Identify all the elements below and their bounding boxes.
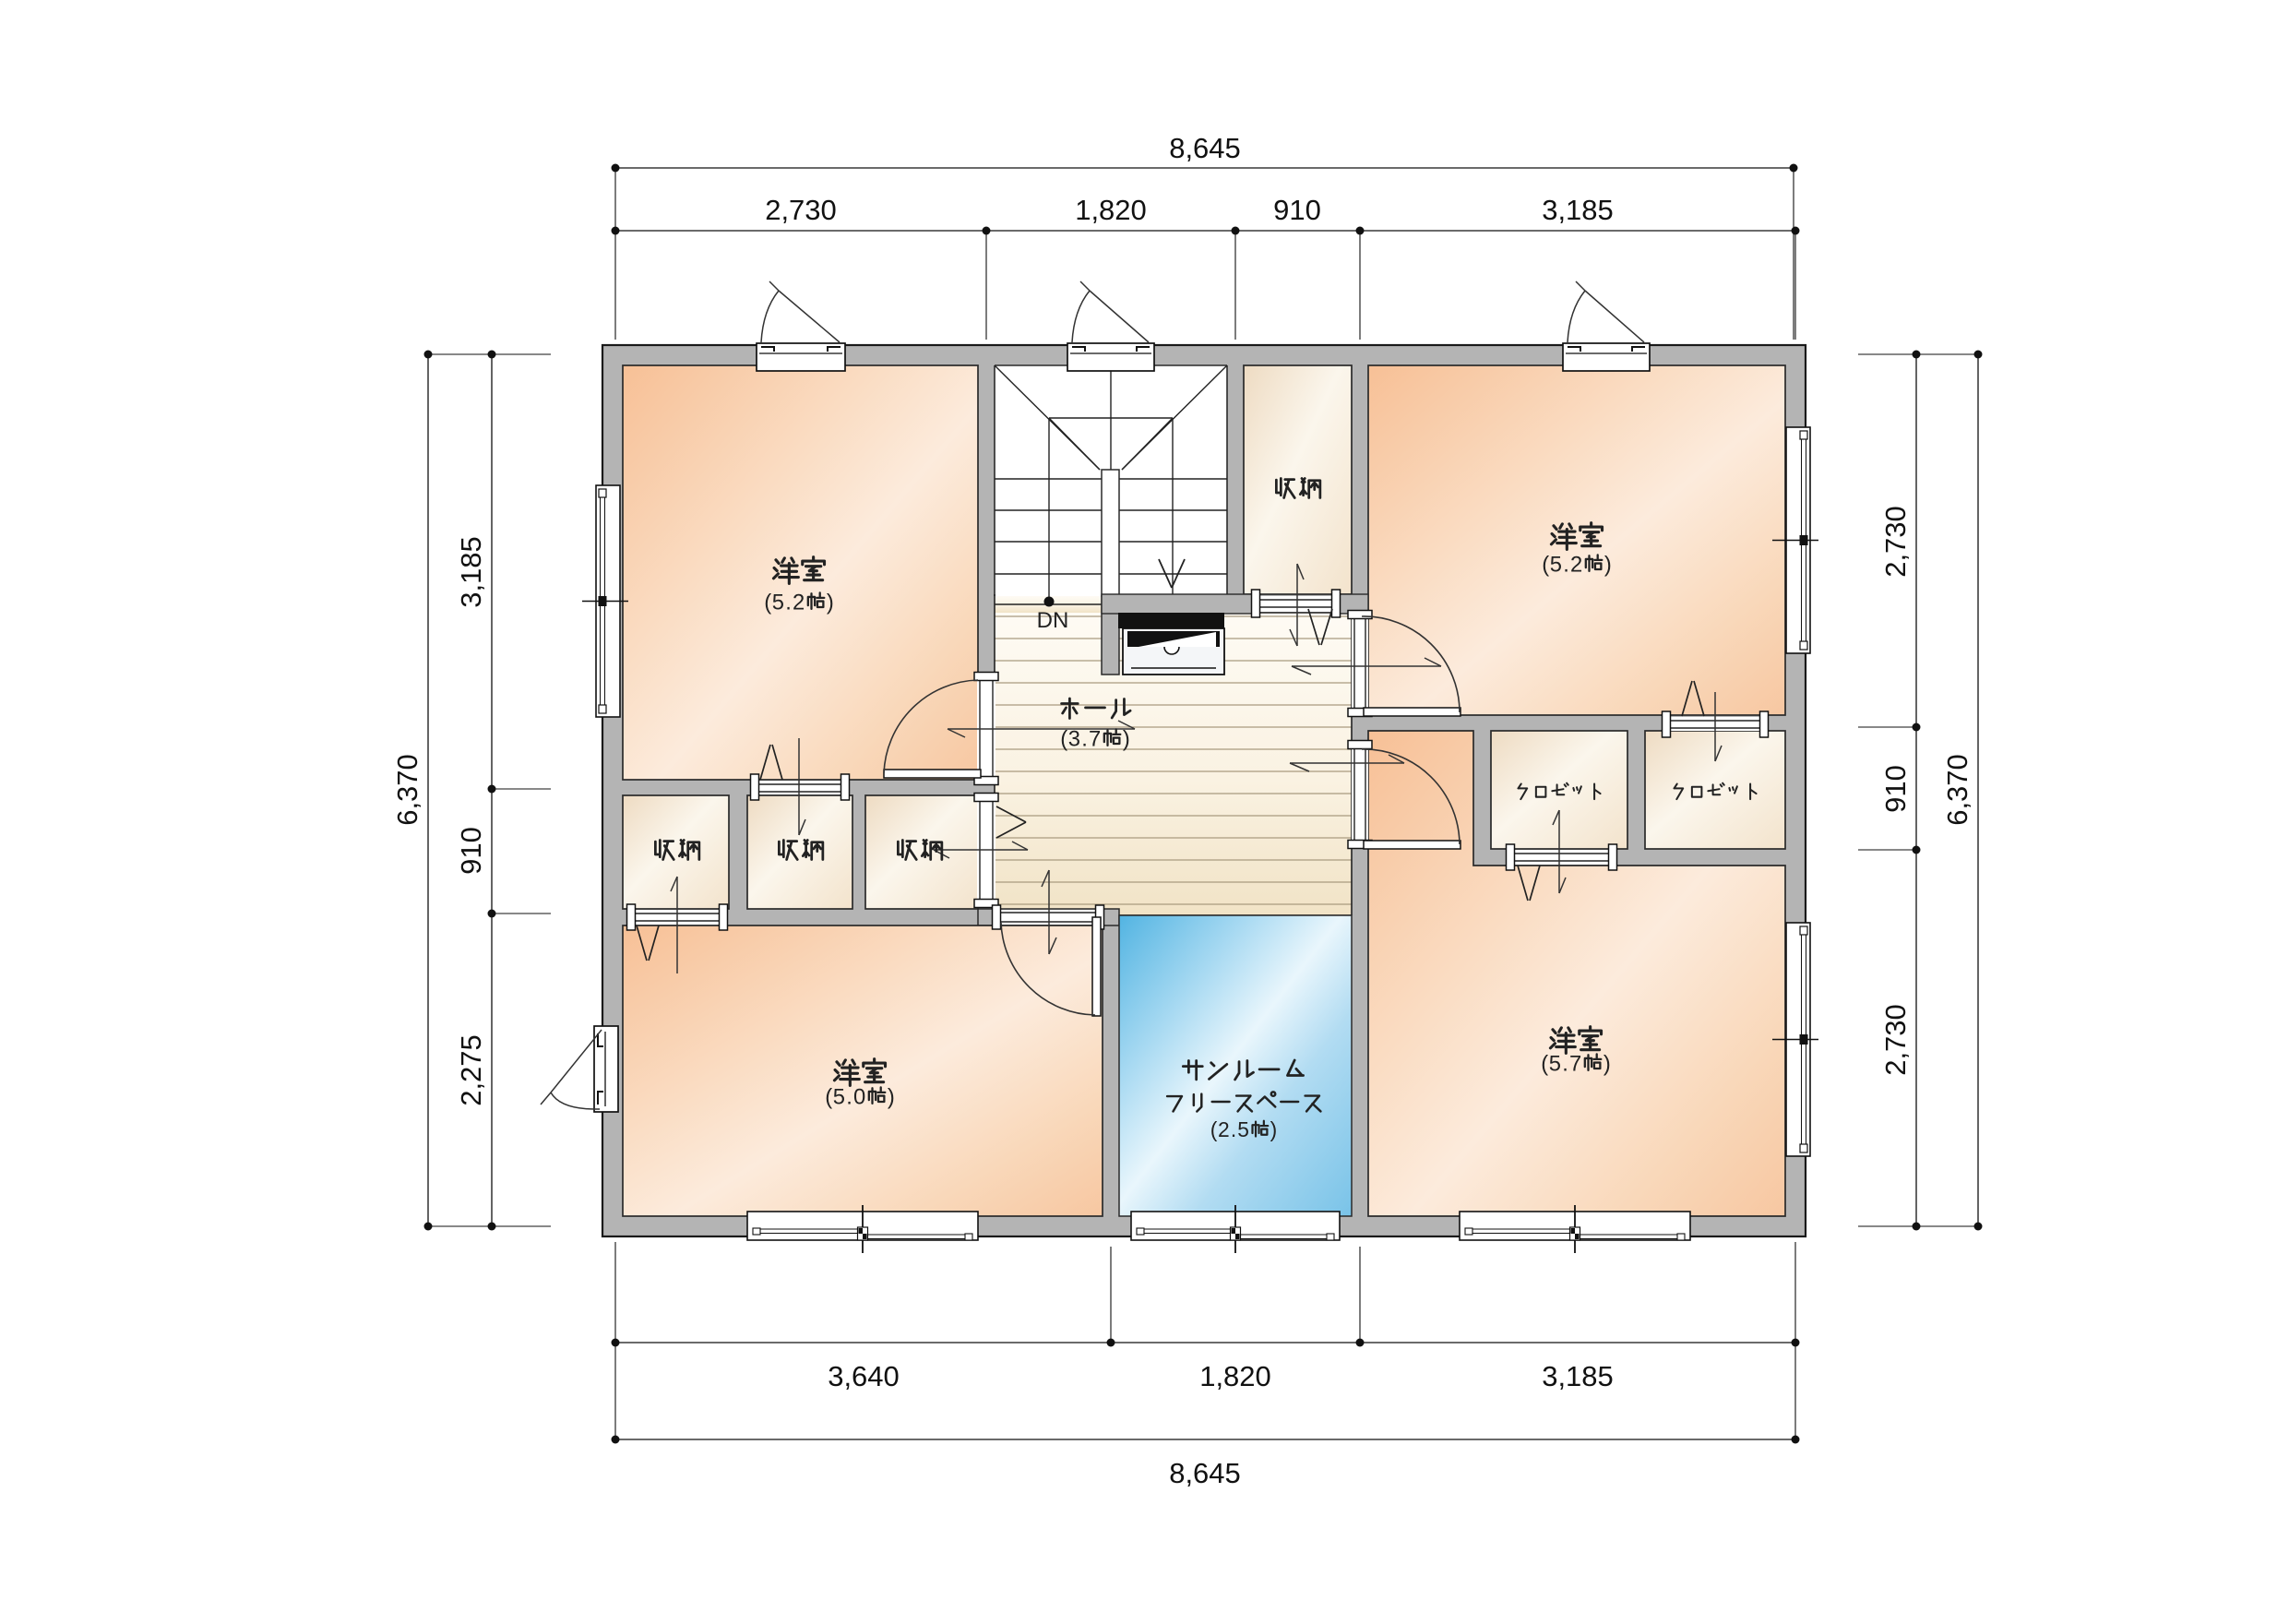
svg-text:(: ( <box>1210 1117 1218 1141</box>
svg-text:2,730: 2,730 <box>1879 506 1912 578</box>
svg-text:.: . <box>1563 553 1569 578</box>
svg-text:2,730: 2,730 <box>1879 1004 1912 1076</box>
svg-text:910: 910 <box>1879 765 1912 813</box>
svg-text:): ) <box>1603 1052 1611 1077</box>
svg-text:): ) <box>888 1085 895 1110</box>
svg-text:): ) <box>1604 553 1612 578</box>
svg-text:5: 5 <box>1237 1117 1249 1141</box>
svg-text:7: 7 <box>1089 727 1101 752</box>
svg-text:3,185: 3,185 <box>1542 194 1614 226</box>
svg-text:3,640: 3,640 <box>828 1360 900 1392</box>
svg-text:910: 910 <box>455 827 487 875</box>
svg-text:.: . <box>1562 1052 1568 1077</box>
svg-text:2: 2 <box>1570 553 1582 578</box>
svg-text:.: . <box>1081 727 1088 752</box>
svg-text:8,645: 8,645 <box>1169 132 1241 164</box>
svg-text:3: 3 <box>1068 727 1080 752</box>
svg-text:): ) <box>827 591 834 615</box>
svg-text:6,370: 6,370 <box>1941 754 1973 826</box>
svg-text:5: 5 <box>1550 553 1562 578</box>
svg-text:7: 7 <box>1569 1052 1581 1077</box>
svg-text:(: ( <box>764 591 771 615</box>
svg-text:DN: DN <box>1037 608 1069 633</box>
svg-text:1,820: 1,820 <box>1199 1360 1271 1392</box>
svg-text:2: 2 <box>1218 1117 1230 1141</box>
svg-text:.: . <box>846 1085 852 1110</box>
svg-text:): ) <box>1270 1117 1278 1141</box>
svg-text:910: 910 <box>1273 194 1321 226</box>
svg-text:2,275: 2,275 <box>455 1034 487 1106</box>
svg-text:2: 2 <box>793 591 805 615</box>
svg-text:5: 5 <box>833 1085 845 1110</box>
svg-text:.: . <box>785 591 792 615</box>
svg-text:1,820: 1,820 <box>1075 194 1147 226</box>
svg-text:5: 5 <box>1549 1052 1561 1077</box>
svg-text:8,645: 8,645 <box>1169 1457 1241 1489</box>
svg-text:): ) <box>1123 727 1130 752</box>
svg-text:(: ( <box>1541 1052 1548 1077</box>
svg-text:6,370: 6,370 <box>391 754 423 826</box>
svg-text:3,185: 3,185 <box>1542 1360 1614 1392</box>
svg-text:(: ( <box>825 1085 832 1110</box>
svg-text:0: 0 <box>853 1085 865 1110</box>
svg-text:2,730: 2,730 <box>765 194 837 226</box>
svg-text:(: ( <box>1060 727 1067 752</box>
svg-text:(: ( <box>1542 553 1549 578</box>
svg-text:5: 5 <box>772 591 784 615</box>
svg-text:3,185: 3,185 <box>455 536 487 608</box>
svg-text:.: . <box>1231 1117 1236 1141</box>
